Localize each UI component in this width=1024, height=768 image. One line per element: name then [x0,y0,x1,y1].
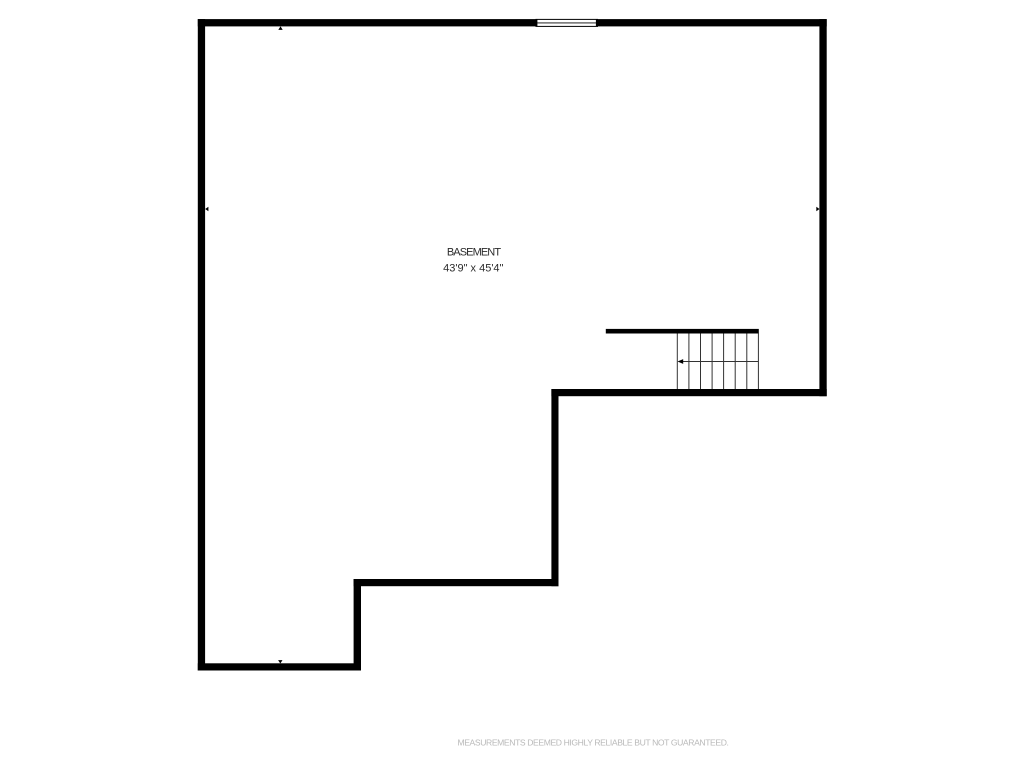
svg-text:43'9" x 45'4": 43'9" x 45'4" [443,263,503,275]
svg-text:BASEMENT: BASEMENT [447,246,501,258]
svg-text:MEASUREMENTS DEEMED HIGHLY REL: MEASUREMENTS DEEMED HIGHLY RELIABLE BUT … [457,737,728,747]
